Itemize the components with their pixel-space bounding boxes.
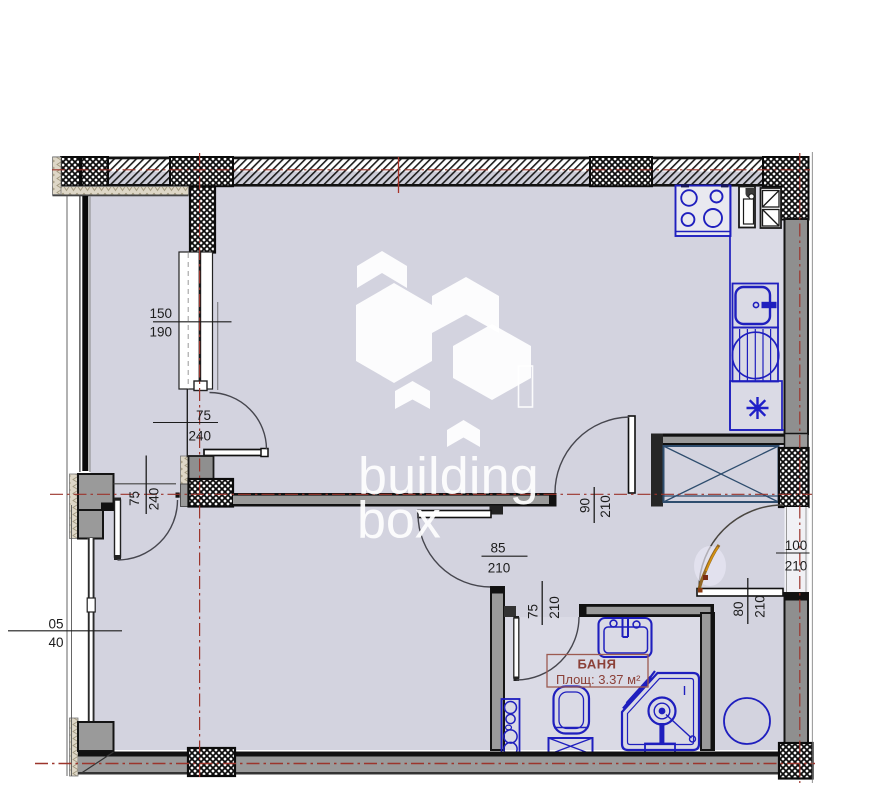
- svg-text:БАНЯ: БАНЯ: [578, 657, 617, 672]
- svg-text:150: 150: [149, 306, 172, 321]
- svg-text:240: 240: [188, 429, 211, 444]
- svg-text:210: 210: [488, 561, 511, 576]
- svg-text:75: 75: [526, 604, 541, 619]
- svg-text:100: 100: [785, 538, 808, 553]
- svg-text:90: 90: [578, 498, 593, 513]
- svg-text:box: box: [357, 492, 441, 550]
- svg-text:210: 210: [753, 595, 768, 618]
- svg-text:05: 05: [48, 617, 63, 632]
- svg-text:Площ: 3.37 м²: Площ: 3.37 м²: [556, 672, 641, 687]
- svg-text:210: 210: [598, 495, 613, 518]
- svg-text:210: 210: [547, 596, 562, 619]
- svg-text:75: 75: [127, 491, 142, 506]
- svg-text:190: 190: [149, 325, 172, 340]
- svg-text:85: 85: [490, 541, 505, 556]
- svg-text:75: 75: [196, 408, 211, 423]
- svg-text:240: 240: [147, 488, 162, 511]
- svg-text:80: 80: [731, 601, 746, 616]
- svg-text:210: 210: [785, 559, 808, 574]
- svg-text:40: 40: [48, 635, 63, 650]
